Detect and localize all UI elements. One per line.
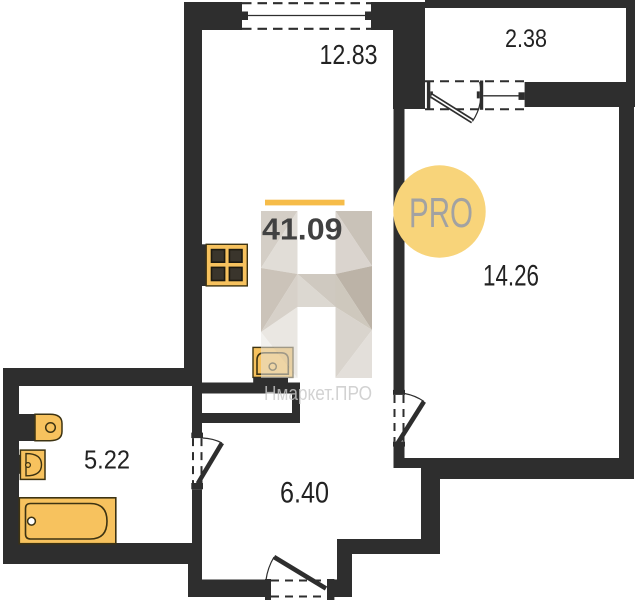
svg-text:5.22: 5.22 — [84, 445, 130, 475]
svg-text:41.09: 41.09 — [262, 212, 343, 247]
svg-text:6.40: 6.40 — [280, 477, 329, 510]
svg-text:14.26: 14.26 — [483, 259, 539, 292]
svg-text:PRO: PRO — [409, 189, 473, 236]
svg-text:12.83: 12.83 — [320, 39, 378, 70]
svg-text:2.38: 2.38 — [505, 25, 547, 53]
svg-text:Нмаркет.ПРО: Нмаркет.ПРО — [264, 382, 372, 405]
